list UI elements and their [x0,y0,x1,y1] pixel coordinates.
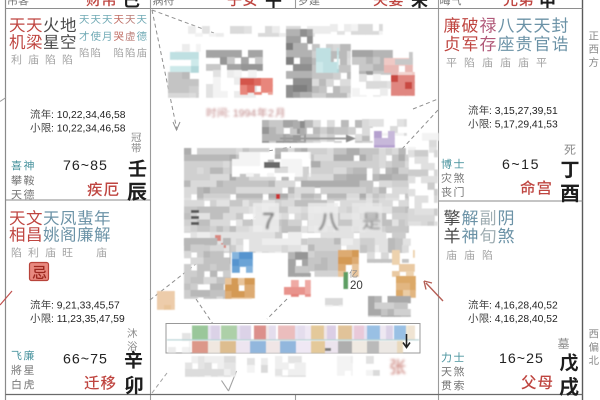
svg-text:: 10,22,34,46,58: : 10,22,34,46,58 [51,124,126,135]
svg-text:: 1994: : 1994 [227,108,256,120]
svg-text:20: 20 [350,280,363,292]
svg-text:: 9,21,33,45,57: : 9,21,33,45,57 [51,301,120,312]
svg-text:: 4,16,28,40,52: : 4,16,28,40,52 [489,301,558,312]
svg-text:6~15: 6~15 [502,157,540,173]
svg-text:76~85: 76~85 [63,158,108,174]
svg-text:: 4,16,28,40,52: : 4,16,28,40,52 [489,314,558,325]
svg-text:: 5,17,29,41,53: : 5,17,29,41,53 [489,120,558,131]
svg-text:: 10,22,34,46,58: : 10,22,34,46,58 [51,110,126,121]
svg-text:: 3,15,27,39,51: : 3,15,27,39,51 [489,106,558,117]
svg-text:7: 7 [262,208,275,234]
svg-text:: 11,23,35,47,59: : 11,23,35,47,59 [51,314,125,325]
svg-text:2: 2 [268,108,274,120]
svg-text:66~75: 66~75 [63,352,108,368]
svg-text:16~25: 16~25 [499,351,544,367]
